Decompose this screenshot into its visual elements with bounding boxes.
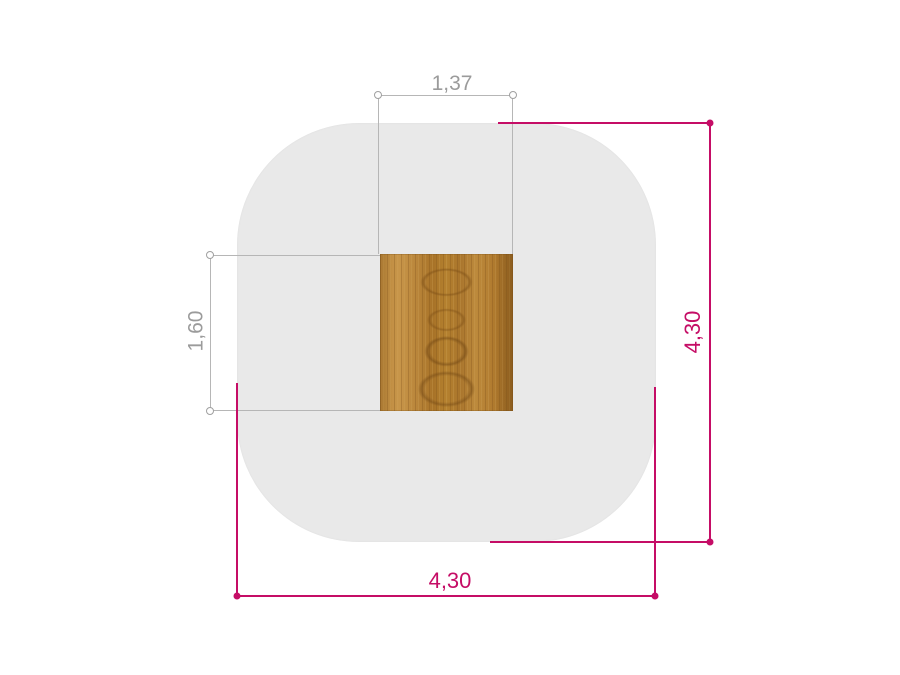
dim-top-extension-left <box>378 95 379 254</box>
drawing-canvas: 1,37 1,60 4,30 4,30 <box>0 0 900 675</box>
wood-table-top <box>380 254 513 411</box>
dim-left-extension-top <box>210 255 380 256</box>
dim-top-endpoint-circle-right <box>509 91 517 99</box>
dim-left-line <box>210 255 211 411</box>
dim-right-extension-top <box>498 122 710 124</box>
dim-left-endpoint-circle-bottom <box>206 407 214 415</box>
dim-top-label: 1,37 <box>432 73 473 94</box>
dim-bottom-extension-right <box>654 387 656 596</box>
dim-bottom-label: 4,30 <box>429 570 472 592</box>
dim-right-extension-bottom <box>490 541 710 543</box>
dim-right-label: 4,30 <box>682 311 704 354</box>
dim-top-endpoint-circle-left <box>374 91 382 99</box>
dim-right-endpoint-dot-bottom <box>707 539 714 546</box>
dim-right-line <box>709 123 711 542</box>
dim-bottom-endpoint-dot-left <box>234 593 241 600</box>
dim-left-label: 1,60 <box>186 311 207 352</box>
dim-bottom-endpoint-dot-right <box>652 593 659 600</box>
dim-bottom-line <box>237 595 655 597</box>
dim-top-extension-right <box>512 95 513 254</box>
dim-top-line <box>378 95 513 96</box>
dim-right-endpoint-dot-top <box>707 120 714 127</box>
dim-bottom-extension-left <box>236 383 238 596</box>
dim-left-endpoint-circle-top <box>206 251 214 259</box>
